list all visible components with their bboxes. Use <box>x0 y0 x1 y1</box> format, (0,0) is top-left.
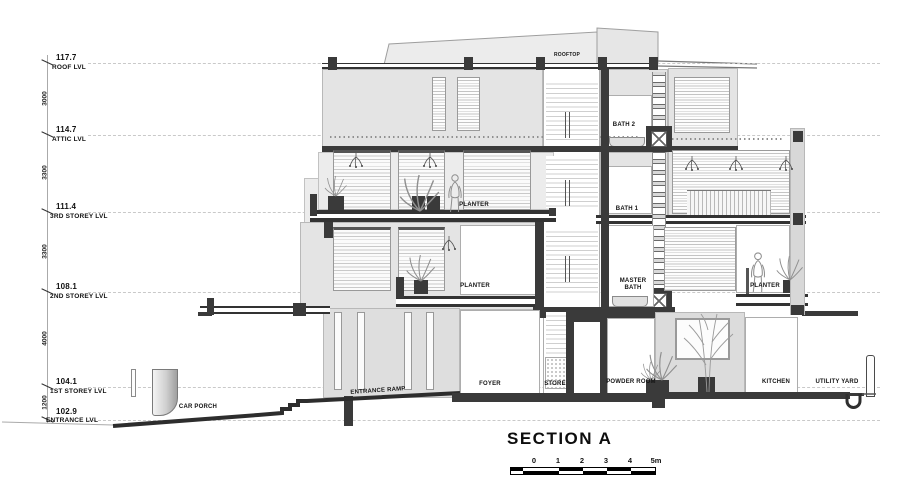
linework-overlay <box>0 0 920 499</box>
palm-plant <box>400 175 439 211</box>
room-label-master-bath: MASTER BATH <box>618 278 648 292</box>
room-label-bath1: BATH 1 <box>616 206 638 212</box>
room-label-kitchen: KITCHEN <box>762 379 790 385</box>
room-label-planter-3rd: PLANTER <box>459 202 489 208</box>
room-label-powder-room: POWDER ROOM <box>606 379 656 385</box>
room-label-car-porch: CAR PORCH <box>179 404 217 410</box>
room-label-store: STORE <box>544 381 566 387</box>
room-label-rooftop: ROOFTOP <box>554 52 580 58</box>
tree-graphic <box>684 314 733 392</box>
room-label-foyer: FOYER <box>479 381 501 387</box>
room-label-utility-yard: UTILITY YARD <box>816 379 859 385</box>
room-label-planter-2nd: PLANTER <box>460 283 490 289</box>
room-label-planter-right: PLANTER <box>750 283 780 289</box>
section-drawing: 117.7 ROOF LVL 114.7 ATTIC LVL 111.4 3RD… <box>0 0 920 499</box>
room-label-bath2: BATH 2 <box>613 122 635 128</box>
